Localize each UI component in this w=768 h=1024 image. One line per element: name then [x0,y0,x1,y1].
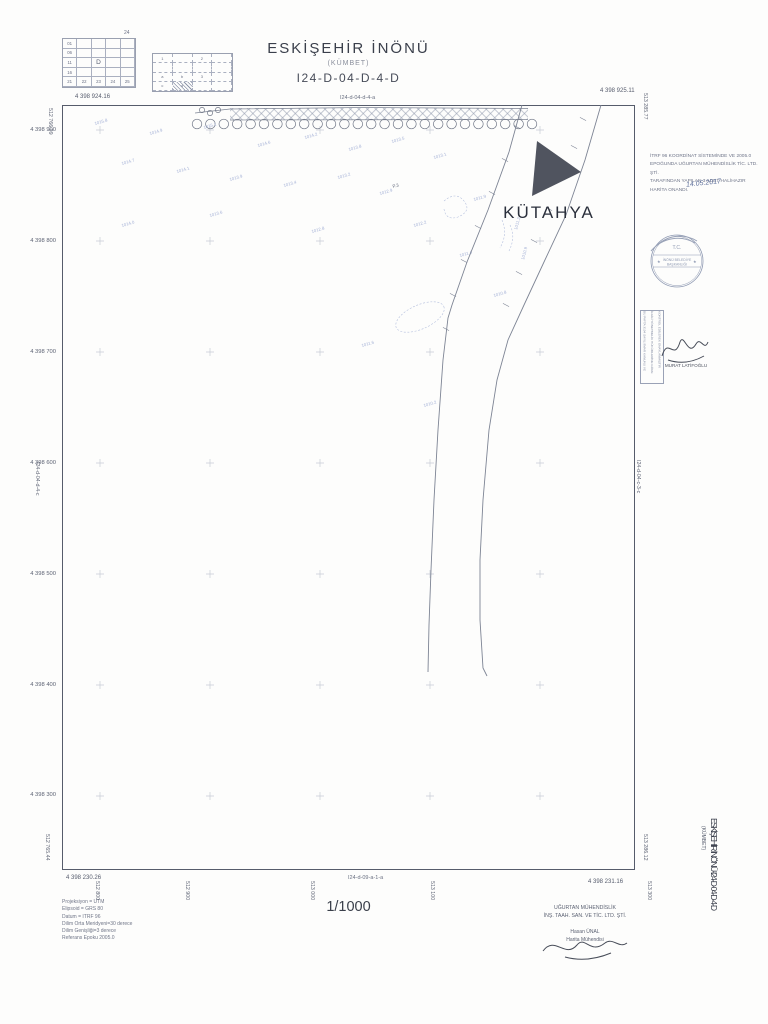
grid-cross [426,792,434,800]
tree-symbol [447,119,457,129]
grid-cross [536,459,544,467]
northing-label: 4 398 700 [16,349,56,355]
stamp-line2: BAŞKANLIĞI [667,262,687,267]
tree-symbol [393,119,403,129]
grid-cross [206,681,214,689]
tree-symbol [286,119,296,129]
murat-signature [656,328,711,368]
spot-elevation: 1010.8 [493,289,508,298]
tree-symbol [500,119,510,129]
northing-label: 4 398 800 [16,238,56,244]
tree-symbol [407,119,417,129]
engineer-signature [535,933,635,963]
tree-symbol [192,119,202,129]
approval-box-line: İLGİLİ YÖNETMELİK HÜKÜMLERİNE GÖRE [650,311,654,383]
road-line-west [428,105,522,672]
stamp-star-right: ★ [693,259,697,264]
vegetation-band [195,107,528,120]
tree-symbol [259,119,269,129]
easting-label: 513 000 [309,881,315,900]
spot-elevation: 1014.1 [176,165,191,174]
spot-elevation: 1014.9 [149,127,164,136]
tree-symbol [380,119,390,129]
tree-symbol [366,119,376,129]
triangle-marker [532,141,581,196]
road-tick [475,225,481,228]
page-subtitle: (KÜMBET) [62,60,635,67]
grid-cross [536,681,544,689]
easting-label: 513 100 [429,881,435,900]
approval-note: İTRF 96 KOORDİNAT SİSTEMİNDE VE 2005.0EP… [650,153,760,195]
grid-cross [426,237,434,245]
spot-elevation: 1013.6 [209,209,224,218]
spot-elevation: 1014.7 [121,157,136,166]
road-tick [461,259,467,262]
spot-elevation: 1013.8 [348,143,363,152]
spot-elevation: 1015.8 [94,117,109,126]
tree-symbol [474,119,484,129]
spot-elevation: 1011.9 [473,193,487,202]
road-tick [571,145,577,148]
grid-cross [206,348,214,356]
tree-symbol [313,119,323,129]
grid-cross [316,459,324,467]
spot-elevation: 1011.4 [459,249,473,258]
grid-cross [536,792,544,800]
city-label: KÜTAHYA [503,203,595,222]
grid-cross [316,570,324,578]
grid-cross [536,348,544,356]
tree-symbol [326,119,336,129]
spot-elevation: 1013.9 [229,173,244,182]
edge-coordinate-label: 512 765.44 [44,834,50,861]
tree-symbol [527,119,537,129]
grid-cross [206,237,214,245]
approval-line: HARİTA ONANDI. [650,187,760,195]
neighbor-sheet-east: I24-d-04-c-3-c [635,460,641,493]
grid-cross [316,237,324,245]
spot-elevation: 1014.2 [304,131,319,140]
spot-elevations: 1015.81014.91015.11014.61014.21013.81013… [94,117,529,408]
stamp-tc-label: T.C. [673,245,682,251]
road-tick [580,117,586,120]
tree-symbol [299,119,309,129]
grid-cross [536,570,544,578]
northing-label: 4 398 500 [16,571,56,577]
grid-cross [96,126,104,134]
grid-cross [316,348,324,356]
northing-label: 4 398 300 [16,792,56,798]
spot-elevation: 1012.2 [413,219,428,228]
approval-line: EPOĞUNDA UĞURTAN MÜHENDİSLİK TİC. LTD. Ş… [650,161,760,178]
side-title: ESKİŞEHİR İNÖNÜ-I24-D-04-D-4-D [709,818,719,910]
grid-cross [426,126,434,134]
road-tick [502,158,508,161]
sheet-code: I24-D-04-D-4-D [62,71,635,85]
spot-elevation: 1013.1 [433,151,448,160]
road-tick [443,327,449,330]
tree-row [192,119,537,129]
grid-cross [316,126,324,134]
road-tick [503,303,509,306]
grid-cross [426,681,434,689]
easting-label: 512 900 [184,881,190,900]
spot-elevation: 1014.0 [121,219,136,228]
neighbor-sheet-south: I24-d-09-a-1-a [348,875,383,881]
easting-label: 512 800 [94,881,100,900]
tree-symbol [433,119,443,129]
grid-cross [206,792,214,800]
tree-symbol [232,119,242,129]
tree-symbol [460,119,470,129]
projection-line: Referans Epoku 2005.0 [62,935,132,942]
corner-coord-bottom-right: 4 398 231.16 [588,879,623,885]
spot-elevation: 1011.6 [361,339,375,348]
grid-cross [316,792,324,800]
road-tick [516,271,522,274]
neighbor-sheet-north: I24-d-04-d-4-a [340,95,375,101]
page-title: ESKİŞEHİR İNÖNÜ [62,40,635,57]
projection-line: Dilim Genişliği=3 derece [62,928,132,935]
approver-name: MURAT LATİFOĞLU [660,363,712,368]
grid-cross [426,570,434,578]
corner-coord-top-right: 4 398 925.11 [600,88,635,94]
easting-label: 513 300 [646,881,652,900]
grid-cross [96,237,104,245]
spot-elevation: 1013.2 [337,171,352,180]
map-sheet-page: 010611D162122232425 24 12ab3cd ESKİŞEHİR… [0,0,768,1024]
approval-line: İTRF 96 KOORDİNAT SİSTEMİNDE VE 2005.0 [650,153,760,161]
tree-symbol [353,119,363,129]
grid-cross [426,459,434,467]
grid-cross [206,459,214,467]
grid-cross [316,681,324,689]
tree-symbol [487,119,497,129]
corner-coord-top-left: 4 398 924.16 [75,94,110,100]
tree-symbol [340,119,350,129]
map-canvas: 1015.81014.91015.11014.61014.21013.81013… [62,105,635,870]
spot-elevation: 1012.9 [379,187,394,196]
grid-cross [96,792,104,800]
tree-symbol [514,119,524,129]
spot-elevation: 1012.8 [311,225,326,234]
grid-cross [96,681,104,689]
grid-cross [536,237,544,245]
side-subtitle: (KÜMBET) [700,826,706,850]
grid-cross [96,348,104,356]
edge-coordinate-label: 513 285.77 [642,93,648,120]
stamp-line1: İNÖNÜ BELEDİYE [663,257,692,262]
spot-elevation: 1013.4 [283,179,298,188]
northing-label: 4 398 600 [16,460,56,466]
tree-symbol [219,119,229,129]
spot-elevation: 1010.9 [520,246,528,261]
stamp-star-left: ★ [657,259,661,264]
approval-box-line: BU PAFTA 3194 SAYILI İMAR KANUNU VE [643,311,647,383]
tree-symbol [273,119,283,129]
edge-coordinate-label: 512 766.09 [47,108,53,135]
grid-cross [206,570,214,578]
grid-cross [426,348,434,356]
spot-elevation: 1013.5 [391,135,406,144]
sheet-index-number: 24 [124,30,130,36]
projection-line: Dilim Orta Meridyeni=30 derece [62,921,132,928]
company-line: UĞURTAN MÜHENDİSLİK [515,904,655,912]
grid-cross [536,126,544,134]
grid-cross [96,459,104,467]
official-stamp: T.C. İNÖNÜ BELEDİYE BAŞKANLIĞI ★ ★ [649,233,705,289]
title-block: ESKİŞEHİR İNÖNÜ (KÜMBET) I24-D-04-D-4-D [62,40,635,85]
spot-elevation: P.3 [392,182,400,189]
spot-elevation: 1010.2 [423,399,438,408]
tree-symbol [420,119,430,129]
edge-coordinate-label: 513 286.12 [642,834,648,861]
northing-label: 4 398 400 [16,682,56,688]
neighbor-sheet-west: I24-d-04-d-4-c [34,462,40,496]
blue-sketch [391,196,512,339]
tree-symbol [246,119,256,129]
grid-cross [96,570,104,578]
company-line: İNŞ. TAAH. SAN. VE TİC. LTD. ŞTİ. [515,912,655,920]
spot-elevation: 1014.6 [257,139,272,148]
